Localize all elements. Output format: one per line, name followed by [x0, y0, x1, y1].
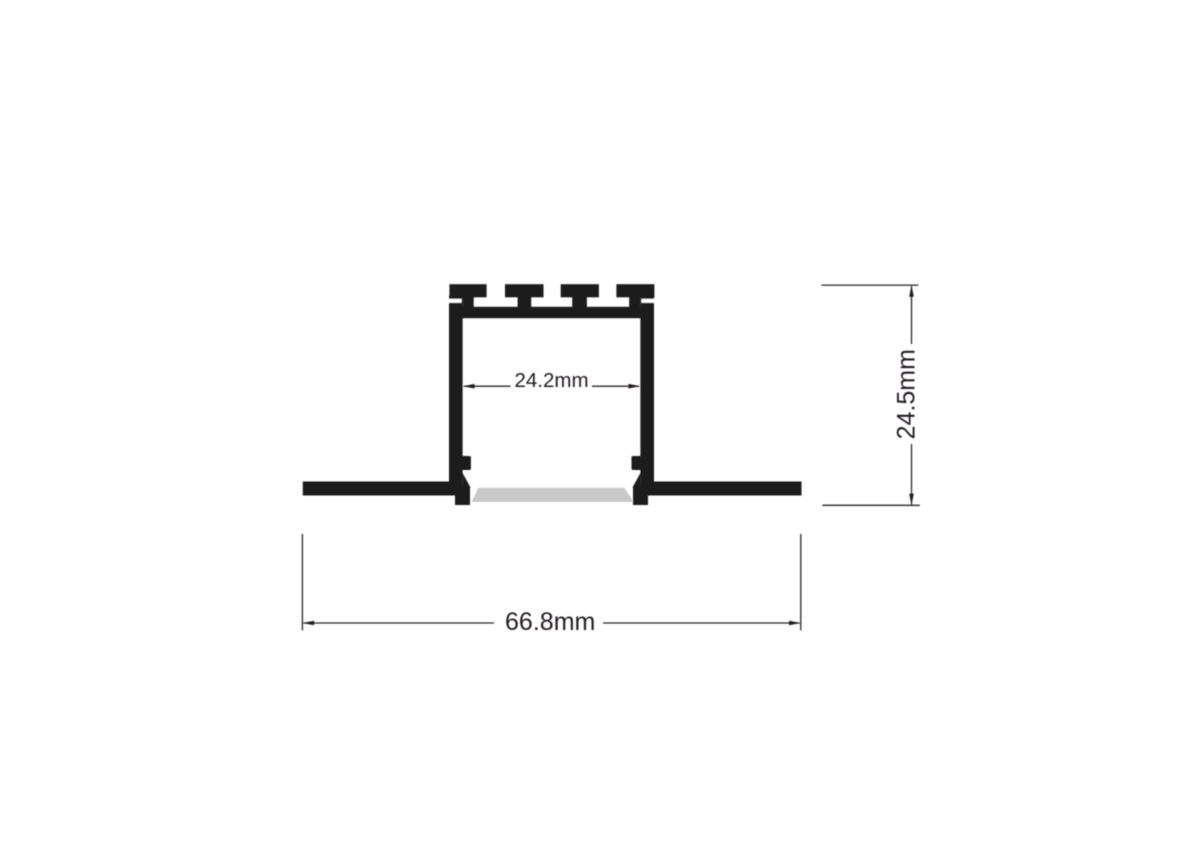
svg-text:24.5mm: 24.5mm — [893, 349, 921, 439]
svg-text:24.2mm: 24.2mm — [514, 369, 588, 392]
svg-text:66.8mm: 66.8mm — [505, 608, 595, 636]
